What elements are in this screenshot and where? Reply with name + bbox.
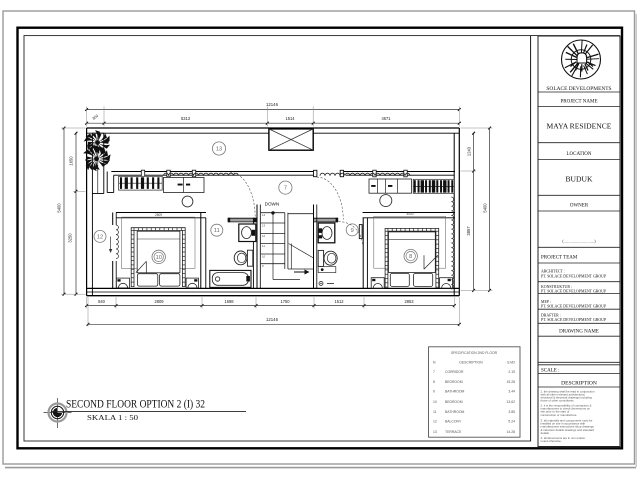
svg-text:11: 11	[433, 410, 437, 414]
svg-text:PT. SOLACE DEVELOPMENT GROUP: PT. SOLACE DEVELOPMENT GROUP	[541, 275, 607, 279]
svg-text:12: 12	[262, 234, 266, 238]
svg-text:SECOND FLOOR OPTION 2 (I) 32: SECOND FLOOR OPTION 2 (I) 32	[66, 397, 205, 411]
svg-text:1514: 1514	[285, 116, 295, 121]
svg-text:BALCONY: BALCONY	[445, 420, 462, 424]
svg-text:BUDUK: BUDUK	[565, 175, 593, 184]
svg-text:9: 9	[262, 264, 264, 268]
svg-text:PT. SOLACE DEVELOPMENT GROUP: PT. SOLACE DEVELOPMENT GROUP	[541, 290, 607, 294]
svg-text:12: 12	[97, 234, 103, 240]
svg-text:4671: 4671	[381, 116, 391, 121]
svg-text:1698: 1698	[224, 299, 234, 304]
svg-text:8: 8	[433, 380, 435, 384]
svg-text:12: 12	[433, 420, 437, 424]
svg-text:ARCHITECT :: ARCHITECT :	[541, 270, 565, 274]
svg-text:PROJECT TEAM: PROJECT TEAM	[541, 255, 578, 260]
svg-text:construction or manufacture.: construction or manufacture.	[541, 413, 578, 417]
svg-text:TERRACE: TERRACE	[445, 430, 462, 434]
svg-text:SOLACE DEVELOPMENTS: SOLACE DEVELOPMENTS	[546, 86, 611, 92]
svg-text:5313: 5313	[181, 116, 191, 121]
svg-text:BATHROOM: BATHROOM	[445, 410, 465, 414]
svg-text:2853: 2853	[404, 299, 414, 304]
svg-text:1243: 1243	[467, 146, 472, 156]
svg-text:3857: 3857	[466, 226, 471, 236]
svg-text:DESCRIPTION: DESCRIPTION	[561, 380, 597, 386]
svg-text:13.62: 13.62	[507, 400, 516, 404]
svg-text:noted otherwise.: noted otherwise.	[541, 439, 562, 443]
svg-text:DRAFTER :: DRAFTER :	[541, 314, 561, 318]
svg-text:SCALE :: SCALE :	[541, 369, 559, 374]
svg-text:N: N	[433, 361, 436, 365]
svg-text:LOCATION: LOCATION	[567, 152, 592, 157]
svg-text:5400: 5400	[483, 203, 488, 213]
svg-text:9: 9	[433, 390, 435, 394]
svg-text:10: 10	[156, 255, 162, 261]
svg-text:350: 350	[92, 114, 99, 121]
svg-text:14.28: 14.28	[507, 430, 516, 434]
svg-text:PROJECT NAME: PROJECT NAME	[561, 100, 598, 105]
svg-text:(...........................): (...........................)	[562, 239, 596, 244]
svg-text:PT. SOLACE DEVELOPMENT GROUP: PT. SOLACE DEVELOPMENT GROUP	[541, 304, 607, 308]
svg-text:1512: 1512	[334, 299, 344, 304]
svg-text:3250: 3250	[68, 233, 73, 243]
svg-text:11: 11	[262, 244, 265, 248]
svg-text:10: 10	[262, 254, 266, 258]
svg-text:2809: 2809	[155, 213, 162, 217]
svg-text:12146: 12146	[266, 102, 279, 107]
svg-text:BEDROOM: BEDROOM	[445, 400, 463, 404]
svg-text:8: 8	[409, 254, 412, 260]
svg-text:7: 7	[284, 186, 287, 192]
svg-text:13: 13	[262, 223, 266, 227]
svg-text:2809: 2809	[154, 299, 164, 304]
svg-text:7: 7	[433, 370, 435, 374]
svg-text:PT. SOLACE DEVELOPMENT GROUP: PT. SOLACE DEVELOPMENT GROUP	[541, 318, 607, 322]
svg-text:OWNER: OWNER	[570, 203, 589, 208]
svg-text:1650: 1650	[69, 156, 74, 166]
svg-text:2.19: 2.19	[508, 370, 515, 374]
svg-text:BEDROOM: BEDROOM	[445, 380, 463, 384]
svg-text:1750: 1750	[280, 299, 290, 304]
svg-text:DRAWING NAME: DRAWING NAME	[559, 329, 599, 334]
svg-text:13: 13	[216, 147, 222, 153]
svg-text:MAYA RESIDENCE: MAYA RESIDENCE	[547, 122, 612, 131]
svg-text:9: 9	[351, 228, 354, 234]
svg-text:MEP :: MEP :	[541, 300, 551, 304]
svg-text:12146: 12146	[266, 317, 279, 322]
svg-text:10: 10	[433, 400, 437, 404]
svg-text:5.24: 5.24	[508, 420, 515, 424]
svg-text:DOWN: DOWN	[265, 202, 280, 207]
svg-text:15.28: 15.28	[507, 380, 516, 384]
svg-text:3.44: 3.44	[508, 390, 515, 394]
svg-text:CORRIDOR: CORRIDOR	[445, 370, 464, 374]
svg-text:840: 840	[98, 299, 106, 304]
svg-text:3.85: 3.85	[508, 410, 515, 414]
svg-text:BATHROOM: BATHROOM	[445, 390, 465, 394]
svg-text:those of other consultants.: those of other consultants.	[541, 399, 575, 403]
svg-text:4000: 4000	[406, 212, 413, 216]
svg-text:SPECIFICATION 2ND FLOOR: SPECIFICATION 2ND FLOOR	[451, 351, 498, 355]
svg-text:DESCRIPTION: DESCRIPTION	[459, 361, 483, 365]
svg-text:11: 11	[214, 228, 220, 234]
svg-text:S.M2: S.M2	[507, 361, 515, 365]
svg-text:14: 14	[262, 213, 266, 217]
svg-text:details.: details.	[541, 431, 550, 435]
svg-text:13: 13	[433, 430, 437, 434]
svg-text:SKALA 1 : 50: SKALA 1 : 50	[87, 413, 138, 422]
svg-text:5400: 5400	[57, 203, 62, 213]
svg-text:KONSTRUKTUR :: KONSTRUKTUR :	[541, 285, 572, 289]
